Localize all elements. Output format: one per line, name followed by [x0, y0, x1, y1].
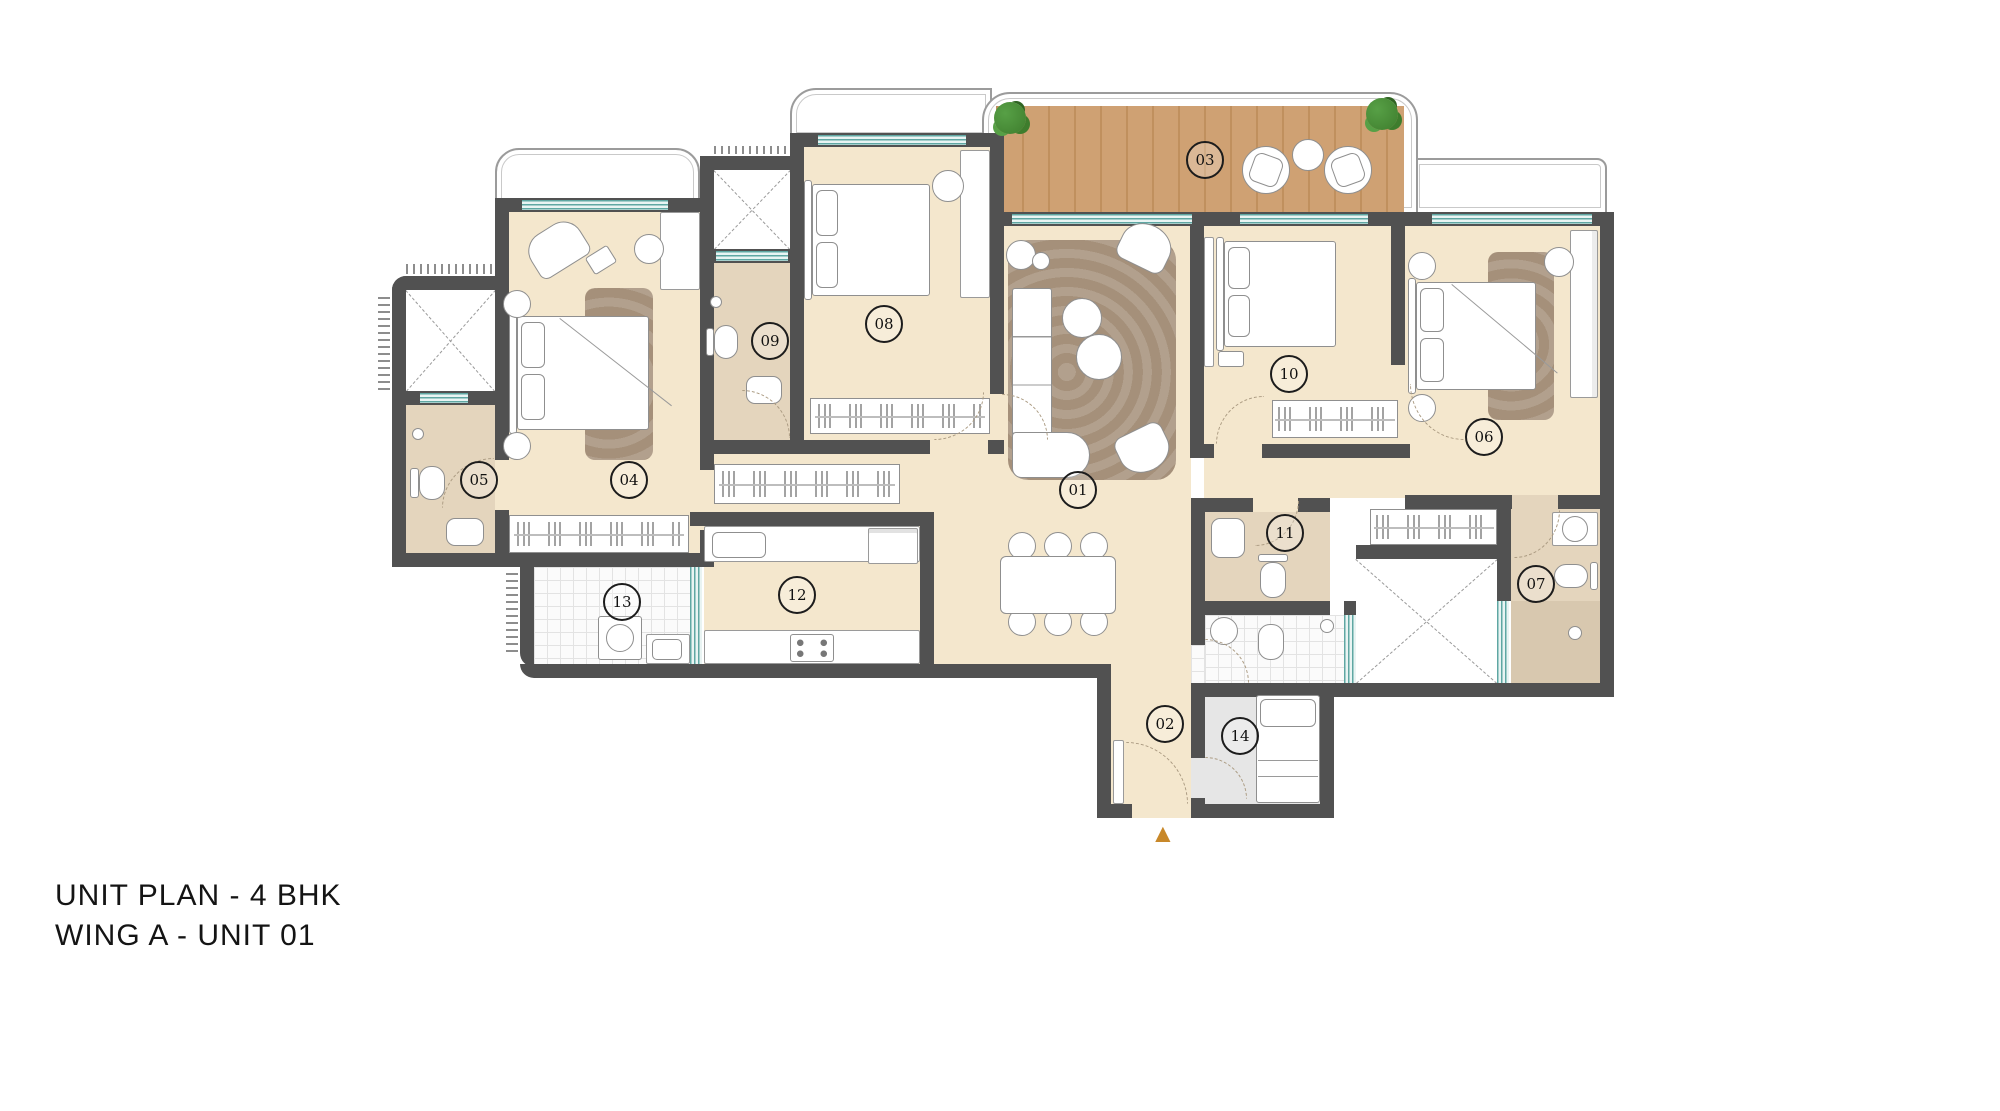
room-label-text: 10: [1279, 365, 1298, 383]
side-table-icon: [1006, 240, 1036, 270]
wc-tank: [706, 328, 714, 356]
dining-table-icon: [1000, 556, 1116, 614]
wall-segment: [700, 156, 804, 170]
wardrobe-icon: [509, 515, 689, 553]
room-label-text: 02: [1155, 715, 1174, 733]
floor-patch: [1214, 444, 1262, 458]
room-label-05: 05: [460, 461, 498, 499]
washbasin-icon: [1562, 516, 1588, 542]
balcony-ledge: [1413, 158, 1607, 214]
wall-segment: [1097, 664, 1111, 818]
shower-icon: [1568, 626, 1582, 640]
sink-icon: [712, 532, 766, 558]
bed-headboard: [804, 180, 812, 300]
wall-segment: [990, 133, 1004, 394]
coffee-table-icon: [1076, 334, 1122, 380]
room-label-04: 04: [610, 461, 648, 499]
pillow-icon: [816, 190, 838, 236]
wall-segment: [1600, 212, 1614, 697]
room-label-13: 13: [603, 583, 641, 621]
window-glass: [1497, 601, 1509, 683]
mirror-icon: [634, 234, 664, 264]
wall-segment: [1558, 495, 1614, 509]
wardrobe-icon: [1272, 400, 1398, 438]
room-floor-corridor-east: [1204, 458, 1391, 498]
round-table-icon: [1292, 139, 1324, 171]
side-table-icon: [503, 432, 531, 460]
wall-segment: [1111, 804, 1132, 818]
wall-segment: [1205, 601, 1330, 615]
floor-plan-canvas: ▲ 01 02 03 04 05 06 07 08 09 10 11 12 13…: [0, 0, 2000, 1111]
plan-title-line1: UNIT PLAN - 4 BHK: [55, 876, 342, 916]
ledge-hatch: [714, 146, 790, 154]
window-glass: [1344, 615, 1356, 683]
wall-segment: [1190, 444, 1214, 458]
plant-icon: [994, 102, 1026, 134]
wall-segment: [392, 276, 509, 290]
bed-headboard: [1216, 237, 1224, 351]
wc-icon: [714, 325, 738, 359]
room-label-text: 08: [874, 315, 893, 333]
wall-segment: [790, 133, 804, 454]
entrance-arrow: ▲: [1150, 820, 1176, 846]
wall-segment: [1298, 498, 1330, 512]
blanket-fold: [1258, 760, 1318, 761]
wardrobe-icon: [1570, 230, 1598, 398]
dresser-icon: [960, 150, 990, 298]
ledge-hatch: [378, 296, 390, 390]
room-label-12: 12: [778, 576, 816, 614]
window-glass: [716, 251, 788, 261]
side-table-icon: [503, 290, 531, 318]
washbasin-icon: [1211, 518, 1245, 558]
wall-segment: [1190, 226, 1204, 444]
wc-tank: [410, 468, 419, 498]
bed-headboard: [1408, 278, 1416, 394]
ledge-hatch: [406, 264, 495, 274]
hob-icon: [790, 634, 834, 662]
window-glass: [690, 567, 702, 664]
room-label-text: 14: [1230, 727, 1249, 745]
shower-icon: [412, 428, 424, 440]
room-label-text: 12: [787, 586, 806, 604]
wc-icon: [1554, 564, 1588, 588]
wall-segment: [495, 510, 509, 567]
wall-segment: [1192, 804, 1205, 818]
side-table-icon: [1408, 252, 1436, 280]
pillow-icon: [1420, 288, 1444, 332]
room-label-text: 13: [612, 593, 631, 611]
coffee-table-icon: [1062, 298, 1102, 338]
wall-segment: [1391, 212, 1405, 365]
washing-machine-drum: [606, 624, 634, 652]
wall-segment: [520, 567, 534, 667]
wardrobe-icon: [1370, 509, 1497, 545]
mirror-icon: [932, 170, 964, 202]
room-label-14: 14: [1221, 717, 1259, 755]
sink-icon: [652, 639, 682, 660]
plan-title-line2: WING A - UNIT 01: [55, 916, 342, 956]
blanket-fold: [1258, 776, 1318, 777]
shower-icon: [1320, 619, 1334, 633]
window-glass: [420, 393, 468, 403]
pillow-icon: [1260, 699, 1316, 727]
shower-icon: [710, 296, 722, 308]
window-glass: [818, 135, 966, 145]
washbasin-icon: [446, 518, 484, 546]
floor-patch: [1191, 758, 1205, 798]
room-label-text: 05: [469, 471, 488, 489]
dresser-icon: [660, 212, 700, 290]
wall-segment: [920, 512, 934, 678]
pillow-icon: [816, 242, 838, 288]
wall-segment: [1356, 545, 1497, 559]
room-label-text: 09: [760, 332, 779, 350]
floor-patch: [930, 440, 988, 454]
wall-segment: [495, 198, 509, 460]
pillow-icon: [1420, 338, 1444, 382]
wall-segment: [1320, 683, 1334, 818]
wardrobe-icon: [714, 464, 900, 504]
wc-icon: [419, 466, 445, 500]
wall-segment: [690, 512, 920, 526]
room-label-text: 11: [1275, 524, 1294, 542]
room-label-text: 06: [1474, 428, 1493, 446]
wall-segment: [700, 156, 714, 470]
bed-headboard: [509, 312, 517, 434]
room-label-text: 01: [1068, 481, 1087, 499]
room-label-text: 04: [619, 471, 638, 489]
pillow-icon: [1228, 247, 1250, 289]
entry-door-leaf: [1113, 740, 1124, 804]
room-label-03: 03: [1186, 141, 1224, 179]
pillow-icon: [1228, 295, 1250, 337]
mirror-icon: [1544, 247, 1574, 277]
tv-console: [1204, 237, 1214, 367]
balcony-ledge: [790, 88, 992, 139]
plan-title: UNIT PLAN - 4 BHK WING A - UNIT 01: [55, 876, 342, 956]
wall-segment: [1405, 495, 1512, 509]
pillow-icon: [521, 322, 545, 368]
wall-segment: [1497, 509, 1511, 601]
side-table-icon: [1032, 252, 1050, 270]
wall-segment: [1191, 498, 1253, 512]
room-label-07: 07: [1517, 565, 1555, 603]
wc-tank: [1258, 554, 1288, 562]
floor-patch: [1132, 804, 1192, 818]
wc-tank: [1590, 562, 1598, 590]
wall-segment: [1191, 512, 1205, 645]
room-label-09: 09: [751, 322, 789, 360]
wall-segment: [988, 440, 1004, 454]
wc-icon: [1258, 624, 1284, 660]
wall-segment: [1262, 444, 1410, 458]
plant-icon: [1366, 98, 1398, 130]
room-label-10: 10: [1270, 355, 1308, 393]
room-label-01: 01: [1059, 471, 1097, 509]
shower-zone: [1511, 601, 1600, 683]
ledge-hatch: [506, 572, 518, 652]
room-label-08: 08: [865, 305, 903, 343]
wall-segment: [1191, 683, 1205, 758]
room-label-11: 11: [1266, 514, 1304, 552]
room-label-text: 07: [1526, 575, 1545, 593]
wall-segment: [392, 276, 406, 567]
room-label-text: 03: [1195, 151, 1214, 169]
window-glass: [1432, 214, 1592, 224]
wall-segment: [1205, 804, 1334, 818]
wall-segment: [700, 440, 930, 454]
fridge-icon: [868, 528, 918, 564]
window-glass: [522, 200, 668, 210]
floor-patch: [1191, 645, 1205, 683]
floor-patch: [1512, 495, 1558, 509]
wall-segment: [1344, 601, 1356, 615]
wc-icon: [1260, 562, 1286, 598]
window-glass: [1240, 214, 1368, 224]
wall-segment: [392, 553, 714, 567]
window-glass: [1012, 214, 1192, 224]
wall-segment: [1334, 683, 1614, 697]
room-label-02: 02: [1146, 705, 1184, 743]
pillow-icon: [521, 374, 545, 420]
bench-icon: [1218, 351, 1244, 367]
wall-segment: [520, 664, 1111, 678]
room-label-06: 06: [1465, 418, 1503, 456]
